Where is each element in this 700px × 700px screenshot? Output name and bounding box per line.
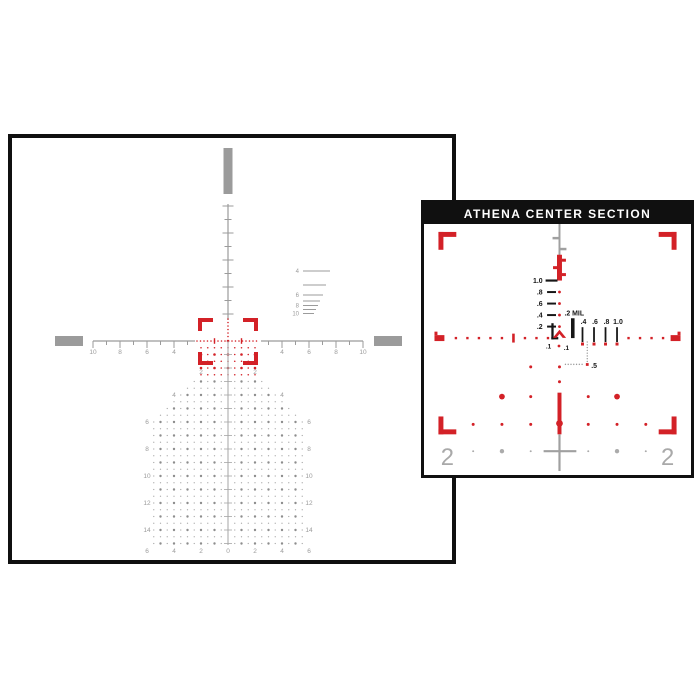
svg-text:10: 10 <box>359 349 367 356</box>
svg-text:10: 10 <box>305 473 313 480</box>
svg-text:10: 10 <box>292 312 299 318</box>
svg-text:6: 6 <box>307 419 311 426</box>
lower-cross <box>472 434 647 471</box>
svg-text:8: 8 <box>334 349 338 356</box>
svg-text:.6: .6 <box>592 319 598 326</box>
rangefinder: 46810 <box>292 269 330 318</box>
red-dotted-crosshair <box>196 318 257 375</box>
svg-text:4: 4 <box>172 392 176 399</box>
svg-text:.4: .4 <box>581 319 587 326</box>
svg-text:14: 14 <box>143 527 151 534</box>
svg-text:12: 12 <box>143 500 151 507</box>
svg-text:8: 8 <box>296 304 300 310</box>
svg-text:4: 4 <box>280 349 284 356</box>
svg-text:6: 6 <box>307 349 311 356</box>
svg-text:4: 4 <box>172 548 176 555</box>
svg-text:6: 6 <box>307 548 311 555</box>
svg-text:10: 10 <box>143 473 151 480</box>
svg-text:.2: .2 <box>537 324 543 331</box>
svg-text:.4: .4 <box>537 313 543 320</box>
reticle-diagram: 1086446810224466881010121214146420246468… <box>0 0 700 700</box>
full-reticle-svg: 1086446810224466881010121214146420246468… <box>12 138 452 560</box>
svg-text:8: 8 <box>118 349 122 356</box>
svg-text:.1: .1 <box>564 345 570 352</box>
center-section-svg: 221.0.8.6.4.2.2 MIL.4.6.81.0.1.1.5 <box>424 224 691 475</box>
svg-text:6: 6 <box>145 349 149 356</box>
lower-dots <box>472 365 648 434</box>
svg-text:10: 10 <box>89 349 97 356</box>
svg-text:4: 4 <box>280 392 284 399</box>
svg-text:2: 2 <box>661 444 674 471</box>
center-section-panel: ATHENA CENTER SECTION 221.0.8.6.4.2.2 MI… <box>421 200 694 478</box>
svg-text:.1: .1 <box>546 344 552 351</box>
center-section-title: ATHENA CENTER SECTION <box>424 203 691 224</box>
top-stem <box>553 224 567 281</box>
svg-text:6: 6 <box>296 293 300 299</box>
svg-text:6: 6 <box>145 548 149 555</box>
svg-text:0: 0 <box>226 548 230 555</box>
elevation-scale: 1.0.8.6.4.2 <box>533 278 561 331</box>
dot-tree: 4466881010121214146420246 <box>143 341 313 555</box>
svg-text:.8: .8 <box>537 290 543 297</box>
svg-text:2: 2 <box>253 548 257 555</box>
half-mil-dotted: .5 <box>565 341 597 369</box>
full-reticle-panel: 1086446810224466881010121214146420246468… <box>8 134 456 564</box>
svg-text:.2 MIL: .2 MIL <box>564 310 584 317</box>
svg-text:8: 8 <box>145 446 149 453</box>
svg-text:2: 2 <box>199 548 203 555</box>
svg-text:12: 12 <box>305 500 313 507</box>
svg-text:1.0: 1.0 <box>533 278 543 285</box>
svg-text:.8: .8 <box>604 319 610 326</box>
svg-text:6: 6 <box>145 419 149 426</box>
svg-text:1.0: 1.0 <box>613 319 623 326</box>
svg-text:8: 8 <box>307 446 311 453</box>
svg-text:4: 4 <box>172 349 176 356</box>
svg-text:4: 4 <box>296 269 300 275</box>
svg-text:2: 2 <box>441 444 454 471</box>
elevation-line <box>223 204 234 320</box>
svg-text:.6: .6 <box>537 301 543 308</box>
edge-mil-numbers: 22 <box>441 444 674 471</box>
svg-text:.5: .5 <box>591 363 597 370</box>
svg-text:4: 4 <box>280 548 284 555</box>
svg-text:14: 14 <box>305 527 313 534</box>
